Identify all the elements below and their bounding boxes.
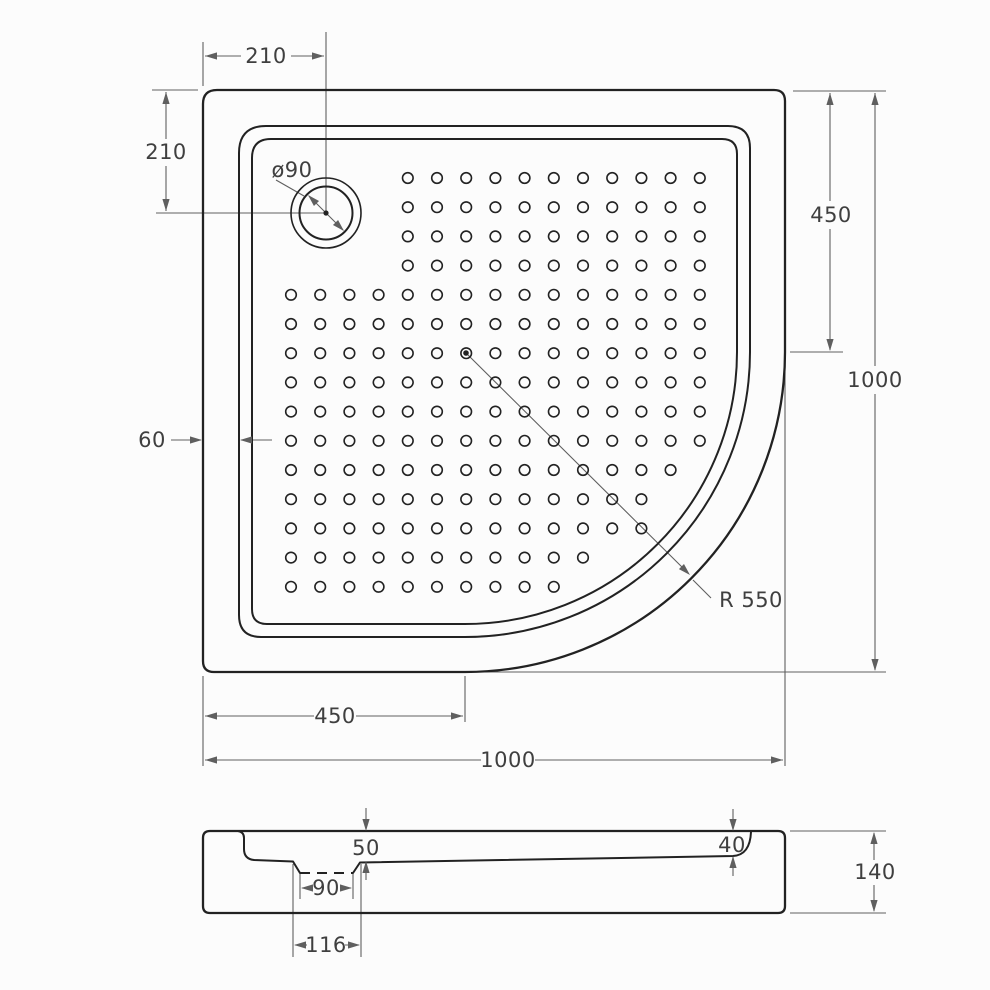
anti-slip-dot (432, 377, 443, 388)
top-view-dimension-lines (152, 32, 886, 766)
anti-slip-dot (607, 377, 618, 388)
anti-slip-dot (403, 377, 414, 388)
anti-slip-dot (315, 523, 326, 534)
arrowhead (870, 832, 877, 844)
anti-slip-dot (373, 436, 384, 447)
anti-slip-dot (519, 465, 530, 476)
anti-slip-dot (461, 173, 472, 184)
anti-slip-dot (665, 290, 676, 301)
anti-slip-dot (286, 494, 297, 505)
arrowhead (870, 900, 877, 912)
anti-slip-dot (403, 290, 414, 301)
anti-slip-dot (695, 377, 706, 388)
arrowhead (729, 856, 736, 868)
anti-slip-dot (461, 377, 472, 388)
anti-slip-dot (432, 494, 443, 505)
anti-slip-dot (636, 436, 647, 447)
anti-slip-dot (286, 348, 297, 359)
dim-label-corner-radius: R 550 (719, 588, 783, 612)
anti-slip-dot (344, 436, 355, 447)
anti-slip-dot (315, 348, 326, 359)
anti-slip-dot (461, 202, 472, 213)
anti-slip-dot (549, 319, 560, 330)
anti-slip-dot (490, 494, 501, 505)
anti-slip-dot (665, 260, 676, 271)
anti-slip-dot (490, 552, 501, 563)
arrowhead (451, 712, 463, 719)
anti-slip-dot (578, 523, 589, 534)
anti-slip-dot (286, 582, 297, 593)
anti-slip-dot (461, 260, 472, 271)
anti-slip-dot (344, 406, 355, 417)
anti-slip-dot (636, 260, 647, 271)
anti-slip-dot (578, 319, 589, 330)
anti-slip-dot (315, 582, 326, 593)
profile-floor-line (238, 831, 300, 873)
anti-slip-dot (519, 436, 530, 447)
anti-slip-dot (373, 582, 384, 593)
anti-slip-dot (578, 290, 589, 301)
anti-slip-dot (432, 260, 443, 271)
anti-slip-dot (373, 523, 384, 534)
anti-slip-dot (665, 319, 676, 330)
dim-label-recess-width-top: 116 (305, 933, 347, 957)
dim-label-drain-recess-depth: 50 (352, 836, 380, 860)
anti-slip-dot (578, 260, 589, 271)
anti-slip-dot (607, 231, 618, 242)
anti-slip-dot (403, 348, 414, 359)
dim-label-drain-offset-x: 210 (245, 44, 287, 68)
anti-slip-dot (286, 552, 297, 563)
anti-slip-dot (549, 260, 560, 271)
anti-slip-dot (315, 406, 326, 417)
anti-slip-dot (549, 231, 560, 242)
arrowhead (190, 436, 202, 443)
anti-slip-dot (665, 202, 676, 213)
anti-slip-dot (373, 406, 384, 417)
anti-slip-dot (695, 319, 706, 330)
radius-leader (466, 353, 711, 598)
anti-slip-dot (461, 465, 472, 476)
arrowhead (205, 712, 217, 719)
anti-slip-dot (578, 465, 589, 476)
dim-label-drain-offset-y: 210 (145, 140, 187, 164)
anti-slip-dot (519, 319, 530, 330)
arrowhead (871, 93, 878, 105)
anti-slip-dot (636, 290, 647, 301)
profile-floor-line-right (353, 832, 751, 873)
anti-slip-dot (665, 173, 676, 184)
anti-slip-dot (519, 231, 530, 242)
anti-slip-dot (665, 231, 676, 242)
arrowhead (771, 756, 783, 763)
anti-slip-dot (373, 377, 384, 388)
dim-label-bottom-straight-edge: 450 (314, 704, 356, 728)
anti-slip-dot (549, 494, 560, 505)
anti-slip-dot (490, 231, 501, 242)
dim-label-overall-width: 1000 (480, 748, 535, 772)
anti-slip-dot (695, 202, 706, 213)
anti-slip-dot (432, 465, 443, 476)
profile-outer-edge (203, 831, 785, 913)
anti-slip-dot (403, 582, 414, 593)
anti-slip-dot (286, 377, 297, 388)
anti-slip-dot (461, 552, 472, 563)
anti-slip-dot (490, 523, 501, 534)
anti-slip-dot (461, 523, 472, 534)
anti-slip-dot (607, 465, 618, 476)
anti-slip-dot (403, 173, 414, 184)
side-view-outline (203, 831, 785, 913)
anti-slip-dot (578, 494, 589, 505)
anti-slip-dot (578, 436, 589, 447)
anti-slip-dot (461, 582, 472, 593)
anti-slip-dot (607, 319, 618, 330)
anti-slip-dot (549, 465, 560, 476)
anti-slip-dot (315, 319, 326, 330)
anti-slip-dot (636, 319, 647, 330)
anti-slip-dot (286, 319, 297, 330)
anti-slip-dot (461, 290, 472, 301)
anti-slip-dot (607, 436, 618, 447)
anti-slip-dot (636, 173, 647, 184)
anti-slip-dot (607, 202, 618, 213)
anti-slip-dot (403, 552, 414, 563)
anti-slip-dot (519, 523, 530, 534)
arrowhead (205, 52, 217, 59)
anti-slip-dot (286, 406, 297, 417)
anti-slip-dot (432, 436, 443, 447)
dim-label-profile-height: 140 (854, 860, 896, 884)
anti-slip-dot (432, 552, 443, 563)
anti-slip-dot (315, 494, 326, 505)
anti-slip-dot (578, 377, 589, 388)
anti-slip-dot (695, 290, 706, 301)
arrowhead (340, 884, 352, 891)
anti-slip-dot (549, 523, 560, 534)
anti-slip-dot (315, 436, 326, 447)
arrowhead (729, 819, 736, 831)
anti-slip-dot (549, 406, 560, 417)
anti-slip-dot (432, 319, 443, 330)
arrowhead (826, 339, 833, 351)
anti-slip-dot (578, 406, 589, 417)
anti-slip-dot (461, 319, 472, 330)
anti-slip-dot (549, 582, 560, 593)
anti-slip-dot (636, 202, 647, 213)
anti-slip-dot (665, 406, 676, 417)
anti-slip-dot (403, 494, 414, 505)
anti-slip-dot (432, 290, 443, 301)
anti-slip-dot (432, 523, 443, 534)
anti-slip-dot (519, 552, 530, 563)
anti-slip-dot (344, 377, 355, 388)
anti-slip-dot (373, 465, 384, 476)
anti-slip-dot (607, 173, 618, 184)
anti-slip-dot (549, 348, 560, 359)
dim-label-drain-diameter: ø90 (271, 158, 312, 182)
anti-slip-dot (461, 231, 472, 242)
anti-slip-dot (490, 436, 501, 447)
anti-slip-dot (432, 231, 443, 242)
anti-slip-dot (549, 290, 560, 301)
dim-label-overall-depth: 1000 (847, 368, 902, 392)
anti-slip-dot (636, 523, 647, 534)
anti-slip-dot (607, 406, 618, 417)
anti-slip-dot (695, 173, 706, 184)
arrowhead (240, 436, 252, 443)
anti-slip-dot (519, 494, 530, 505)
dim-label-far-edge-depth: 40 (718, 833, 746, 857)
anti-slip-dot (636, 348, 647, 359)
anti-slip-dot (286, 465, 297, 476)
anti-slip-dot (549, 377, 560, 388)
anti-slip-dot (490, 260, 501, 271)
anti-slip-dot (578, 231, 589, 242)
anti-slip-dot (695, 231, 706, 242)
anti-slip-dot (665, 465, 676, 476)
anti-slip-dot (403, 406, 414, 417)
radius-center-point (463, 350, 469, 356)
anti-slip-dot (695, 406, 706, 417)
anti-slip-dot (403, 260, 414, 271)
anti-slip-dot (519, 348, 530, 359)
arrowhead (205, 756, 217, 763)
anti-slip-dot (636, 231, 647, 242)
anti-slip-dot (519, 202, 530, 213)
anti-slip-dot (519, 260, 530, 271)
anti-slip-dot (315, 552, 326, 563)
anti-slip-dot (665, 348, 676, 359)
anti-slip-dot (344, 465, 355, 476)
anti-slip-dot (315, 377, 326, 388)
anti-slip-dot (490, 465, 501, 476)
anti-slip-dot (607, 523, 618, 534)
arrowhead (162, 92, 169, 104)
anti-slip-dot (286, 290, 297, 301)
anti-slip-dot (607, 260, 618, 271)
anti-slip-dot (432, 582, 443, 593)
arrowhead (871, 659, 878, 671)
anti-slip-dot (490, 290, 501, 301)
anti-slip-dot (549, 436, 560, 447)
anti-slip-dot (373, 552, 384, 563)
anti-slip-dot (403, 231, 414, 242)
shower-tray-drawing: 210 210 ø90 450 1000 60 R 550 450 1000 5… (0, 0, 990, 990)
anti-slip-dot (607, 494, 618, 505)
anti-slip-dot (578, 202, 589, 213)
anti-slip-dot (519, 377, 530, 388)
anti-slip-dot (344, 582, 355, 593)
arrowhead (312, 52, 324, 59)
anti-slip-dot (636, 377, 647, 388)
anti-slip-dot (461, 406, 472, 417)
anti-slip-dot (490, 319, 501, 330)
anti-slip-dot (432, 173, 443, 184)
drain-diameter-leader (276, 180, 304, 196)
anti-slip-dot (432, 406, 443, 417)
anti-slip-dot (403, 436, 414, 447)
arrowhead (362, 819, 369, 831)
anti-slip-dot (490, 173, 501, 184)
arrowhead (826, 93, 833, 105)
anti-slip-dot (344, 494, 355, 505)
anti-slip-dot (403, 319, 414, 330)
anti-slip-dot (695, 348, 706, 359)
anti-slip-dot (403, 202, 414, 213)
anti-slip-dot (403, 465, 414, 476)
anti-slip-dot (373, 494, 384, 505)
dim-label-rim-width: 60 (138, 428, 166, 452)
drain-center-point (323, 210, 328, 215)
anti-slip-dot (315, 290, 326, 301)
anti-slip-dot (403, 523, 414, 534)
anti-slip-dot (549, 173, 560, 184)
arrowhead (162, 199, 169, 211)
anti-slip-dot (461, 436, 472, 447)
anti-slip-dot (695, 436, 706, 447)
dim-label-right-straight-edge: 450 (810, 203, 852, 227)
anti-slip-dot (665, 377, 676, 388)
dim-label-recess-width-bottom: 90 (312, 876, 340, 900)
anti-slip-dot (490, 406, 501, 417)
anti-slip-dot (344, 552, 355, 563)
dimension-arrowheads (162, 52, 878, 948)
anti-slip-dot (461, 494, 472, 505)
anti-slip-dot (490, 348, 501, 359)
anti-slip-dot (490, 202, 501, 213)
technical-drawing-canvas: 210 210 ø90 450 1000 60 R 550 450 1000 5… (0, 0, 990, 990)
anti-slip-dot (519, 290, 530, 301)
anti-slip-dot (636, 406, 647, 417)
anti-slip-dot (490, 582, 501, 593)
anti-slip-dot (373, 290, 384, 301)
anti-slip-dot (286, 436, 297, 447)
anti-slip-dot (578, 552, 589, 563)
anti-slip-dot (665, 436, 676, 447)
anti-slip-dot (695, 260, 706, 271)
anti-slip-dot (578, 173, 589, 184)
anti-slip-dot (344, 348, 355, 359)
arrowhead (348, 941, 360, 948)
anti-slip-dot (636, 465, 647, 476)
anti-slip-dot (607, 348, 618, 359)
anti-slip-dot (578, 348, 589, 359)
anti-slip-dot (549, 552, 560, 563)
anti-slip-dot (432, 348, 443, 359)
anti-slip-dot (344, 290, 355, 301)
anti-slip-dot (607, 290, 618, 301)
anti-slip-dot (519, 582, 530, 593)
anti-slip-dot (315, 465, 326, 476)
anti-slip-dot (519, 173, 530, 184)
anti-slip-dot (636, 494, 647, 505)
anti-slip-dot (549, 202, 560, 213)
anti-slip-dot (344, 523, 355, 534)
anti-slip-dot (432, 202, 443, 213)
arrowhead (294, 941, 306, 948)
anti-slip-dot (286, 523, 297, 534)
anti-slip-dot (373, 319, 384, 330)
anti-slip-dot (373, 348, 384, 359)
anti-slip-dot (344, 319, 355, 330)
